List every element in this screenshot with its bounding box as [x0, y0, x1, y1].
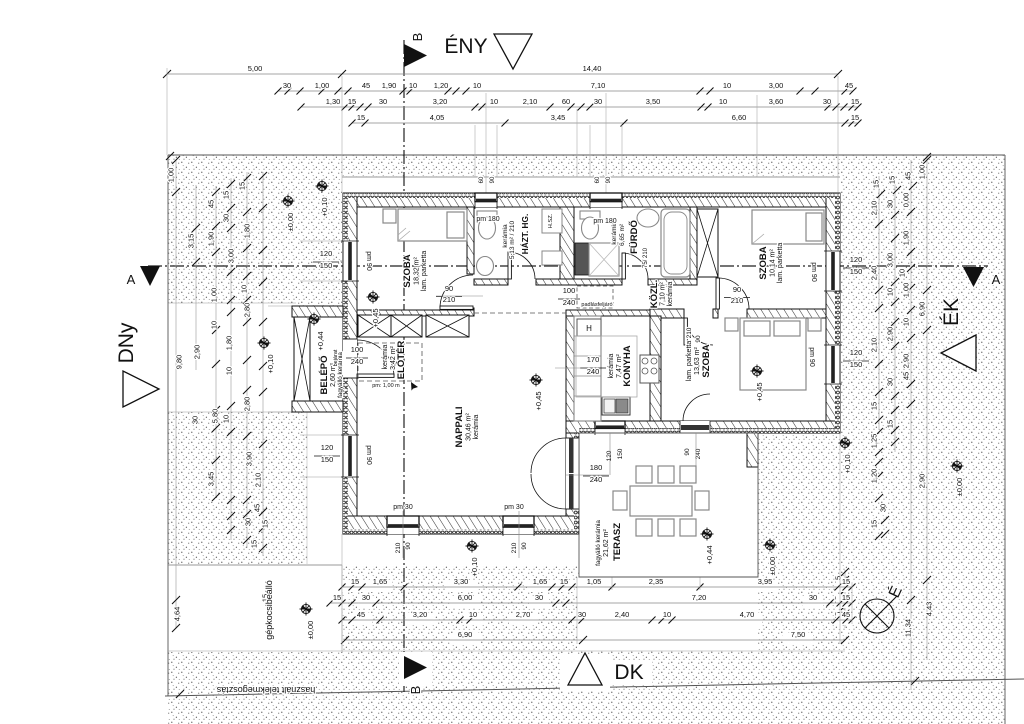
svg-text:15: 15 [851, 113, 859, 122]
svg-text:15: 15 [870, 520, 879, 528]
svg-text:100: 100 [563, 286, 576, 295]
svg-text:használt telekmegosztás: használt telekmegosztás [216, 685, 315, 695]
svg-text:15: 15 [333, 593, 341, 602]
svg-text:2,90: 2,90 [918, 474, 927, 489]
svg-text:3,45: 3,45 [207, 472, 216, 487]
svg-text:3,30: 3,30 [454, 577, 469, 586]
svg-text:DK: DK [614, 661, 643, 684]
svg-text:210: 210 [511, 542, 518, 553]
svg-text:45: 45 [253, 504, 262, 512]
svg-text:3,15: 3,15 [187, 234, 196, 249]
svg-text:pm 30: pm 30 [393, 504, 413, 511]
svg-text:240: 240 [351, 357, 364, 366]
svg-text:5,00: 5,00 [248, 64, 263, 73]
svg-text:1,65: 1,65 [373, 577, 388, 586]
svg-text:15: 15 [560, 577, 568, 586]
svg-text:90: 90 [684, 448, 691, 456]
svg-text:+0,10: +0,10 [320, 198, 329, 217]
svg-text:10: 10 [473, 81, 481, 90]
svg-text:30: 30 [886, 378, 895, 386]
svg-text:150: 150 [321, 455, 334, 464]
svg-text:pm 180: pm 180 [476, 216, 499, 223]
svg-text:+0,45: +0,45 [534, 392, 543, 411]
svg-text:120: 120 [320, 249, 333, 258]
svg-text:3,00: 3,00 [886, 253, 895, 268]
svg-text:11,34: 11,34 [904, 619, 913, 637]
svg-text:210: 210 [731, 296, 744, 305]
svg-text:1,00: 1,00 [902, 283, 911, 298]
svg-text:A: A [127, 272, 136, 287]
svg-text:6,65 m²: 6,65 m² [619, 223, 626, 246]
svg-text:±0,00: ±0,00 [768, 557, 777, 576]
svg-text:15: 15 [357, 113, 365, 122]
svg-text:+0,10: +0,10 [843, 455, 852, 474]
svg-text:10: 10 [723, 81, 731, 90]
svg-text:5,80: 5,80 [211, 409, 220, 424]
svg-text:1,00: 1,00 [918, 165, 927, 180]
svg-text:H.SZ.: H.SZ. [548, 213, 554, 228]
svg-text:15: 15 [842, 577, 850, 586]
svg-text:3,45: 3,45 [551, 113, 566, 122]
svg-text:15: 15 [870, 402, 879, 410]
svg-text:2,90: 2,90 [902, 354, 911, 369]
svg-text:bejárat: bejárat [333, 349, 339, 366]
svg-text:+0,44: +0,44 [705, 546, 714, 565]
svg-text:+0,45: +0,45 [371, 309, 380, 328]
svg-text:90: 90 [521, 542, 528, 550]
svg-text:1,20: 1,20 [434, 81, 449, 90]
svg-text:45: 45 [842, 610, 850, 619]
svg-text:kerámia: kerámia [608, 353, 615, 378]
svg-text:21,62 m²: 21,62 m² [603, 529, 610, 557]
svg-text:45: 45 [207, 200, 216, 208]
svg-text:2,10: 2,10 [254, 473, 263, 488]
svg-text:120: 120 [321, 443, 334, 452]
svg-text:3,00: 3,00 [227, 249, 236, 264]
svg-text:10: 10 [886, 288, 895, 296]
svg-text:pm: 1,00 m: pm: 1,00 m [372, 383, 400, 389]
svg-text:4,43: 4,43 [925, 602, 934, 617]
svg-text:30: 30 [222, 214, 231, 222]
svg-text:60: 60 [595, 176, 601, 183]
svg-text:KÖZL.: KÖZL. [649, 280, 660, 309]
svg-text:5,13 m² / 210: 5,13 m² / 210 [509, 220, 516, 259]
svg-text:2,80: 2,80 [243, 397, 252, 412]
svg-text:15: 15 [351, 577, 359, 586]
svg-text:2,90: 2,90 [886, 327, 895, 342]
svg-text:3,00: 3,00 [769, 81, 784, 90]
svg-text:ÉK: ÉK [940, 298, 963, 326]
svg-text:45: 45 [362, 81, 370, 90]
svg-text:TERASZ: TERASZ [612, 523, 623, 561]
svg-text:6,00: 6,00 [458, 593, 473, 602]
svg-text:kerámia: kerámia [502, 224, 509, 248]
svg-text:3,20: 3,20 [413, 610, 428, 619]
svg-text:15: 15 [886, 420, 895, 428]
svg-text:15: 15 [842, 593, 850, 602]
svg-text:120: 120 [850, 348, 863, 357]
svg-text:90: 90 [405, 542, 412, 550]
svg-text:45: 45 [357, 610, 365, 619]
svg-text:2,70: 2,70 [516, 610, 531, 619]
svg-text:lam. parketta: lam. parketta [686, 341, 693, 382]
svg-text:kerámia: kerámia [382, 344, 389, 369]
svg-text:lam. parketta: lam. parketta [777, 243, 784, 284]
svg-text:3,90: 3,90 [245, 452, 254, 467]
svg-text:75/ 210: 75/ 210 [643, 247, 649, 268]
svg-text:18,32 m²: 18,32 m² [414, 257, 421, 285]
svg-text:A: A [992, 272, 1001, 287]
svg-text:1,80: 1,80 [243, 224, 252, 239]
svg-text:10: 10 [898, 269, 907, 277]
svg-text:15: 15 [872, 180, 881, 188]
svg-text:kerámia: kerámia [667, 281, 674, 306]
svg-text:1,00: 1,00 [210, 288, 219, 303]
svg-text:padlásfeljáró: padlásfeljáró [581, 302, 612, 308]
svg-text:15: 15 [250, 540, 259, 548]
svg-text:10: 10 [902, 318, 911, 326]
svg-text:2,90: 2,90 [193, 345, 202, 360]
svg-text:3,60: 3,60 [769, 97, 784, 106]
svg-text:60: 60 [562, 97, 570, 106]
svg-text:1,00: 1,00 [315, 81, 330, 90]
svg-text:30: 30 [594, 97, 602, 106]
svg-text:30: 30 [191, 416, 200, 424]
svg-text:240: 240 [590, 475, 603, 484]
svg-text:150: 150 [617, 448, 624, 459]
svg-text:SZOBA: SZOBA [701, 344, 712, 377]
svg-text:2,35: 2,35 [649, 577, 664, 586]
svg-text:0,00: 0,00 [902, 193, 911, 208]
svg-text:2,10: 2,10 [870, 338, 879, 353]
svg-text:±0,00: ±0,00 [286, 213, 295, 232]
svg-text:1,80: 1,80 [225, 336, 234, 351]
svg-text:150: 150 [850, 267, 863, 276]
svg-text:30: 30 [535, 593, 543, 602]
svg-text:gépkocsibeálló: gépkocsibeálló [264, 580, 274, 640]
svg-text:lam. parketta: lam. parketta [421, 251, 428, 292]
svg-text:10: 10 [469, 610, 477, 619]
svg-text:±0,00: ±0,00 [306, 621, 315, 640]
svg-text:1,90: 1,90 [207, 232, 216, 247]
svg-text:30,46 m²: 30,46 m² [466, 413, 473, 441]
svg-text:90: 90 [733, 285, 741, 294]
svg-text:3,50: 3,50 [646, 97, 661, 106]
svg-text:15: 15 [348, 97, 356, 106]
svg-text:ÉNY: ÉNY [444, 35, 487, 58]
svg-text:1,05: 1,05 [587, 577, 602, 586]
svg-text:210: 210 [686, 327, 693, 338]
svg-text:+0,44: +0,44 [316, 332, 325, 351]
svg-text:1,90: 1,90 [902, 231, 911, 246]
svg-text:210: 210 [443, 295, 456, 304]
svg-text:3,95: 3,95 [758, 577, 773, 586]
svg-text:90: 90 [490, 176, 496, 183]
svg-text:4,70: 4,70 [740, 610, 755, 619]
svg-text:30: 30 [809, 593, 817, 602]
svg-text:7,50: 7,50 [791, 630, 806, 639]
svg-text:1,20: 1,20 [870, 469, 879, 484]
svg-text:180: 180 [590, 463, 603, 472]
svg-text:HÁZT. HG.: HÁZT. HG. [520, 214, 530, 255]
svg-text:10: 10 [409, 81, 417, 90]
svg-text:6,90: 6,90 [918, 302, 927, 317]
svg-text:45: 45 [902, 372, 911, 380]
svg-text:150: 150 [320, 261, 333, 270]
svg-text:15: 15 [261, 520, 270, 528]
svg-text:7,47 m²: 7,47 m² [616, 353, 623, 377]
svg-text:4,05: 4,05 [430, 113, 445, 122]
svg-text:30: 30 [244, 518, 253, 526]
svg-text:60: 60 [479, 176, 485, 183]
svg-text:100: 100 [351, 345, 364, 354]
svg-text:30: 30 [886, 200, 895, 208]
svg-text:KONYHA: KONYHA [622, 345, 633, 386]
svg-text:120: 120 [850, 255, 863, 264]
svg-text:3,42 m²: 3,42 m² [390, 345, 397, 369]
svg-text:10: 10 [719, 97, 727, 106]
svg-text:30: 30 [362, 593, 370, 602]
svg-text:13,63 m²: 13,63 m² [694, 347, 701, 375]
svg-text:10,14 m²: 10,14 m² [770, 249, 777, 277]
svg-text:2,80: 2,80 [243, 303, 252, 318]
svg-text:4,64: 4,64 [173, 607, 182, 622]
svg-text:7,10 m²: 7,10 m² [660, 281, 667, 305]
svg-text:10: 10 [490, 97, 498, 106]
svg-text:6,60: 6,60 [732, 113, 747, 122]
svg-text:30: 30 [879, 504, 888, 512]
svg-text:2,40: 2,40 [615, 610, 630, 619]
svg-text:6,90: 6,90 [458, 630, 473, 639]
svg-text:240: 240 [563, 298, 576, 307]
svg-text:45: 45 [904, 172, 913, 180]
svg-text:10: 10 [222, 415, 231, 423]
svg-text:fagyálló kerámia: fagyálló kerámia [595, 520, 602, 566]
svg-text:SZOBA: SZOBA [402, 254, 413, 287]
svg-text:10: 10 [225, 367, 234, 375]
svg-text:2,10: 2,10 [870, 201, 879, 216]
svg-text:±0,00: ±0,00 [955, 478, 964, 497]
svg-text:14,40: 14,40 [583, 64, 602, 73]
svg-text:2,40: 2,40 [870, 266, 879, 281]
svg-text:90: 90 [695, 335, 702, 343]
svg-text:1,90: 1,90 [382, 81, 397, 90]
svg-text:B: B [410, 33, 425, 42]
svg-text:+0,10: +0,10 [266, 355, 275, 374]
svg-text:90: 90 [606, 176, 612, 183]
svg-text:pm 90: pm 90 [365, 445, 372, 465]
svg-text:15: 15 [222, 191, 231, 199]
svg-text:DNy: DNy [115, 322, 138, 363]
svg-text:H: H [586, 324, 592, 333]
svg-text:1,00: 1,00 [167, 168, 176, 183]
svg-text:BELÉPŐ: BELÉPŐ [318, 355, 330, 394]
svg-text:170: 170 [587, 355, 600, 364]
svg-text:10: 10 [210, 321, 219, 329]
svg-text:9,80: 9,80 [175, 355, 184, 370]
svg-text:SZOBA: SZOBA [758, 246, 769, 279]
svg-text:kerámia: kerámia [473, 414, 480, 439]
svg-text:3,20: 3,20 [433, 97, 448, 106]
svg-text:15: 15 [238, 182, 247, 190]
svg-text:pm 90: pm 90 [365, 251, 372, 271]
svg-text:1,25: 1,25 [870, 434, 879, 449]
svg-text:30: 30 [823, 97, 831, 106]
svg-text:B: B [408, 686, 423, 695]
svg-text:pm 90: pm 90 [808, 347, 815, 367]
svg-text:7,20: 7,20 [692, 593, 707, 602]
svg-text:pm 180: pm 180 [593, 218, 616, 225]
svg-text:30: 30 [283, 81, 291, 90]
svg-text:90: 90 [445, 284, 453, 293]
svg-text:45: 45 [845, 81, 853, 90]
svg-text:7,10: 7,10 [591, 81, 606, 90]
svg-text:+0,45: +0,45 [755, 383, 764, 402]
svg-text:10: 10 [240, 285, 249, 293]
svg-text:2,10: 2,10 [523, 97, 538, 106]
svg-text:FÜRDŐ: FÜRDŐ [628, 220, 640, 254]
svg-text:pm 90: pm 90 [810, 262, 817, 282]
svg-text:240: 240 [587, 367, 600, 376]
svg-text:15: 15 [851, 97, 859, 106]
svg-text:30: 30 [578, 610, 586, 619]
svg-text:+0,10: +0,10 [470, 558, 479, 577]
svg-text:10: 10 [663, 610, 671, 619]
svg-text:30: 30 [379, 97, 387, 106]
svg-text:150: 150 [850, 360, 863, 369]
svg-text:15: 15 [888, 176, 897, 184]
svg-text:210: 210 [395, 542, 402, 553]
svg-text:pm 30: pm 30 [504, 504, 524, 511]
svg-text:1,65: 1,65 [533, 577, 548, 586]
svg-text:NAPPALI: NAPPALI [454, 407, 465, 448]
svg-text:120: 120 [606, 450, 613, 461]
svg-text:1,30: 1,30 [326, 97, 341, 106]
